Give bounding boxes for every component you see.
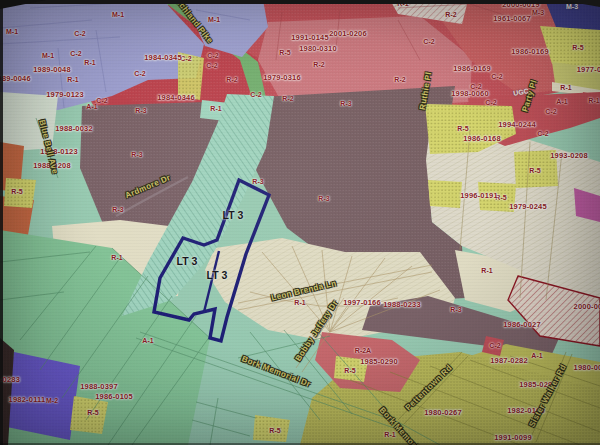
street-name-label: Richland Pike xyxy=(172,0,214,45)
zone-label: R-3 xyxy=(135,107,146,114)
lot-label: LT 3 xyxy=(223,210,244,221)
zone-label: C-2 xyxy=(545,108,556,115)
zone-label: C-2 xyxy=(537,130,548,137)
zone-label: C-2 xyxy=(250,91,261,98)
street-name-label: Bobby Jeffery Dr xyxy=(294,299,339,363)
zone-label: R-5 xyxy=(11,188,22,195)
zone-label: R-5 xyxy=(87,409,98,416)
parcel-id-label: 1988-0397 xyxy=(80,383,118,391)
photo-edge-left xyxy=(0,0,3,445)
zone-label: R-1 xyxy=(294,299,305,306)
zone-label: C-2 xyxy=(485,99,496,106)
zone-label: R-5 xyxy=(344,367,355,374)
parcel-id-label: 1980-0267 xyxy=(424,409,462,417)
zone-label: R-3 xyxy=(450,306,461,313)
zone-label: R-5 xyxy=(529,167,540,174)
parcel-id-label: 1979-0245 xyxy=(509,203,547,211)
parcel-id-label: 1996-0191 xyxy=(460,192,498,200)
zone-label: R-1 xyxy=(210,105,221,112)
zone-label: M-1 xyxy=(208,16,220,23)
parcel-id-label: 1997-0166 xyxy=(343,299,381,307)
street-name-label: Sister Walker Rd xyxy=(528,363,568,428)
zone-label: R-2 xyxy=(394,76,405,83)
parcel-id-label: 1961-0067 xyxy=(493,15,531,23)
parcel-id-label: 1991-0145 xyxy=(291,34,329,42)
zone-label: R-2 xyxy=(282,95,293,102)
parcel-id-label: 1979-0123 xyxy=(46,91,84,99)
street-name-label: Party Pl xyxy=(521,79,538,113)
parcel-id-label: 2000-00 xyxy=(574,303,600,311)
parcel-id-label: 1986-0169 xyxy=(453,65,491,73)
parcel-id-label: 1991-0099 xyxy=(494,434,532,442)
zone-label: R-1 xyxy=(67,76,78,83)
zone-label: C-2 xyxy=(96,97,107,104)
zone-label: A-1 xyxy=(142,337,153,344)
zone-label: R-5 xyxy=(269,427,280,434)
zone-label: R-1 xyxy=(111,254,122,261)
zone-label: R-3 xyxy=(318,195,329,202)
zone-label: M-1 xyxy=(112,11,124,18)
zone-label: R-3 xyxy=(340,100,351,107)
photo-edge-top xyxy=(0,0,600,4)
zone-label: R-3 xyxy=(131,151,142,158)
parcel-id-label: 1993-0208 xyxy=(550,152,588,160)
street-name-label: Ardmore Dr xyxy=(124,174,172,200)
photo-corner-top-right xyxy=(560,0,600,7)
zone-label: R-3 xyxy=(112,206,123,213)
zone-label: R-1 xyxy=(481,267,492,274)
zone-label: C-2 xyxy=(74,30,85,37)
zone-label: M-1 xyxy=(6,28,18,35)
parcel-id-label: 1980-0310 xyxy=(299,45,337,53)
zone-label: R-5 xyxy=(572,44,583,51)
zone-label: R-2 xyxy=(313,61,324,68)
zone-label: A-1 xyxy=(556,98,567,105)
lot-label: LT 3 xyxy=(207,270,228,281)
parcel-id-label: 1987-0282 xyxy=(490,357,528,365)
parcel-id-label: 1984-0346 xyxy=(157,94,195,102)
zone-label: R-2A xyxy=(355,347,371,354)
lot-label: LT 3 xyxy=(177,256,198,267)
zone-label: R-3 xyxy=(252,178,263,185)
zone-label: R-2 xyxy=(445,11,456,18)
zone-label: M-1 xyxy=(42,52,54,59)
zone-label: C-2 xyxy=(206,62,217,69)
parcel-id-label: 1984-0345 xyxy=(144,54,182,62)
zone-label: M-2 xyxy=(46,397,58,404)
zone-label: R-1 xyxy=(384,431,395,438)
zone-label: R-1 xyxy=(588,97,599,104)
parcel-id-label: 2001-0206 xyxy=(329,30,367,38)
zone-label: R-1 xyxy=(84,59,95,66)
parcel-id-label: 1980-00 xyxy=(574,364,600,372)
parcel-id-label: 1988-0233 xyxy=(383,301,421,309)
parcel-id-label: 1979-0316 xyxy=(263,74,301,82)
zone-label: C-2 xyxy=(423,38,434,45)
street-name-label: Ruthie Pl xyxy=(419,71,434,110)
parcel-id-label: 1982-0111 xyxy=(9,396,46,404)
parcel-id-label: 1989-0046 xyxy=(0,75,31,83)
parcel-id-label: 1994-0244 xyxy=(498,121,536,129)
zone-label: C-2 xyxy=(491,73,502,80)
parcel-id-label: 1977-0 xyxy=(577,66,600,74)
zone-label: R-5 xyxy=(457,125,468,132)
zone-label: C-2 xyxy=(489,342,500,349)
parcel-id-label: 1988-0032 xyxy=(55,125,93,133)
zone-label: C-2 xyxy=(134,70,145,77)
parcel-id-label: 1989-0048 xyxy=(33,66,71,74)
zone-label: R-2 xyxy=(226,76,237,83)
parcel-id-label: 1986-0168 xyxy=(463,135,501,143)
map-labels-layer: M-1M-1M-1M-1C-2C-2C-2C-2C-2C-2C-2C-2C-2C… xyxy=(0,0,600,445)
zone-label: R-5 xyxy=(279,49,290,56)
zone-label: C-2 xyxy=(207,52,218,59)
zone-label: C-2 xyxy=(70,50,81,57)
parcel-id-label: 1986-0105 xyxy=(95,393,133,401)
parcel-id-label: 1986-0169 xyxy=(511,48,549,56)
zone-label: A-1 xyxy=(86,103,97,110)
street-name-label: Pettentown Rd xyxy=(404,364,454,412)
parcel-id-label: -0283 xyxy=(0,376,20,384)
parcel-id-label: 1985-0290 xyxy=(360,358,398,366)
zone-label: R-1 xyxy=(560,84,571,91)
zone-label: A-1 xyxy=(531,352,542,359)
photo-corner-top-left xyxy=(0,0,46,9)
map-canvas[interactable]: M-1M-1M-1M-1C-2C-2C-2C-2C-2C-2C-2C-2C-2C… xyxy=(0,0,600,445)
parcel-id-label: 1986-0027 xyxy=(503,321,541,329)
parcel-id-label: 1998-0060 xyxy=(451,90,489,98)
zone-label: M-3 xyxy=(532,9,544,16)
